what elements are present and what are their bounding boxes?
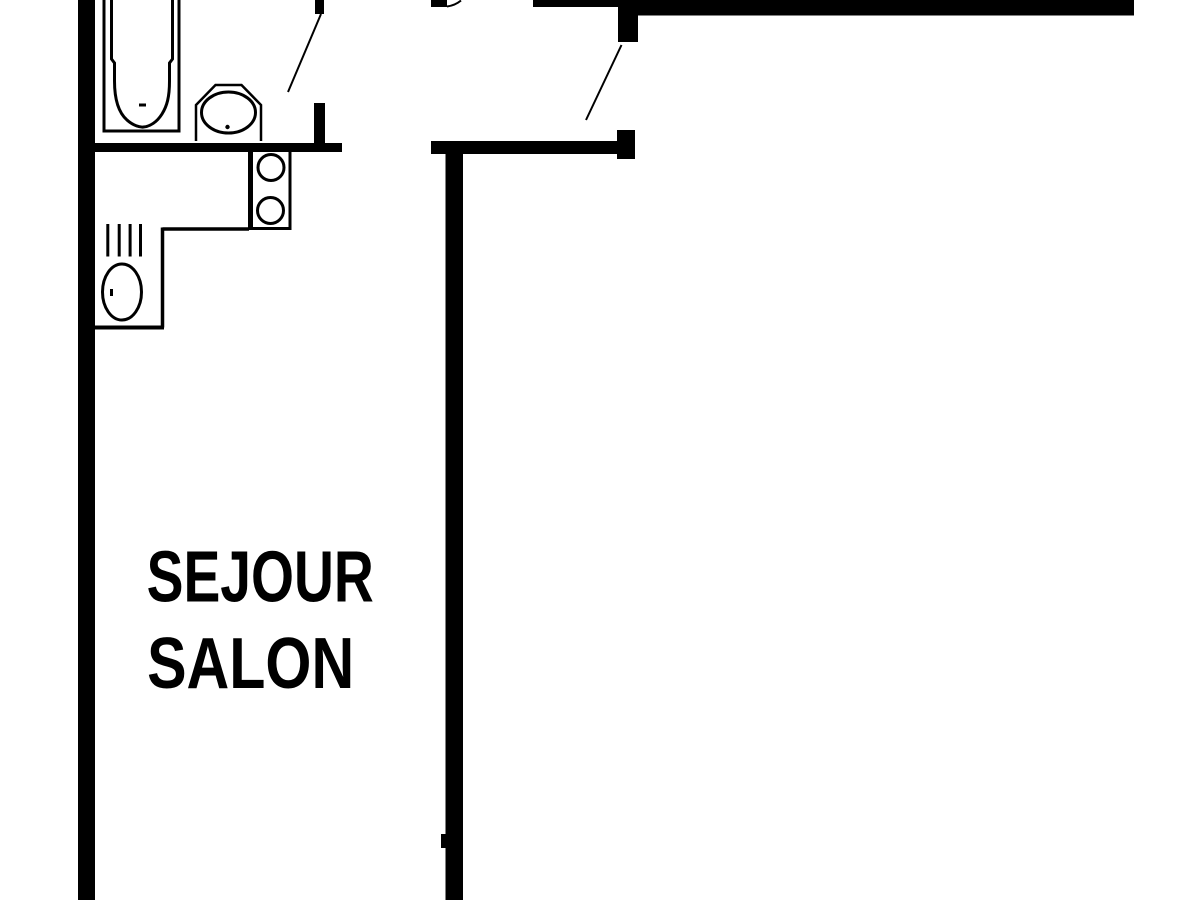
svg-text:SEJOUR: SEJOUR — [147, 536, 374, 617]
svg-text:SALON: SALON — [147, 623, 354, 704]
